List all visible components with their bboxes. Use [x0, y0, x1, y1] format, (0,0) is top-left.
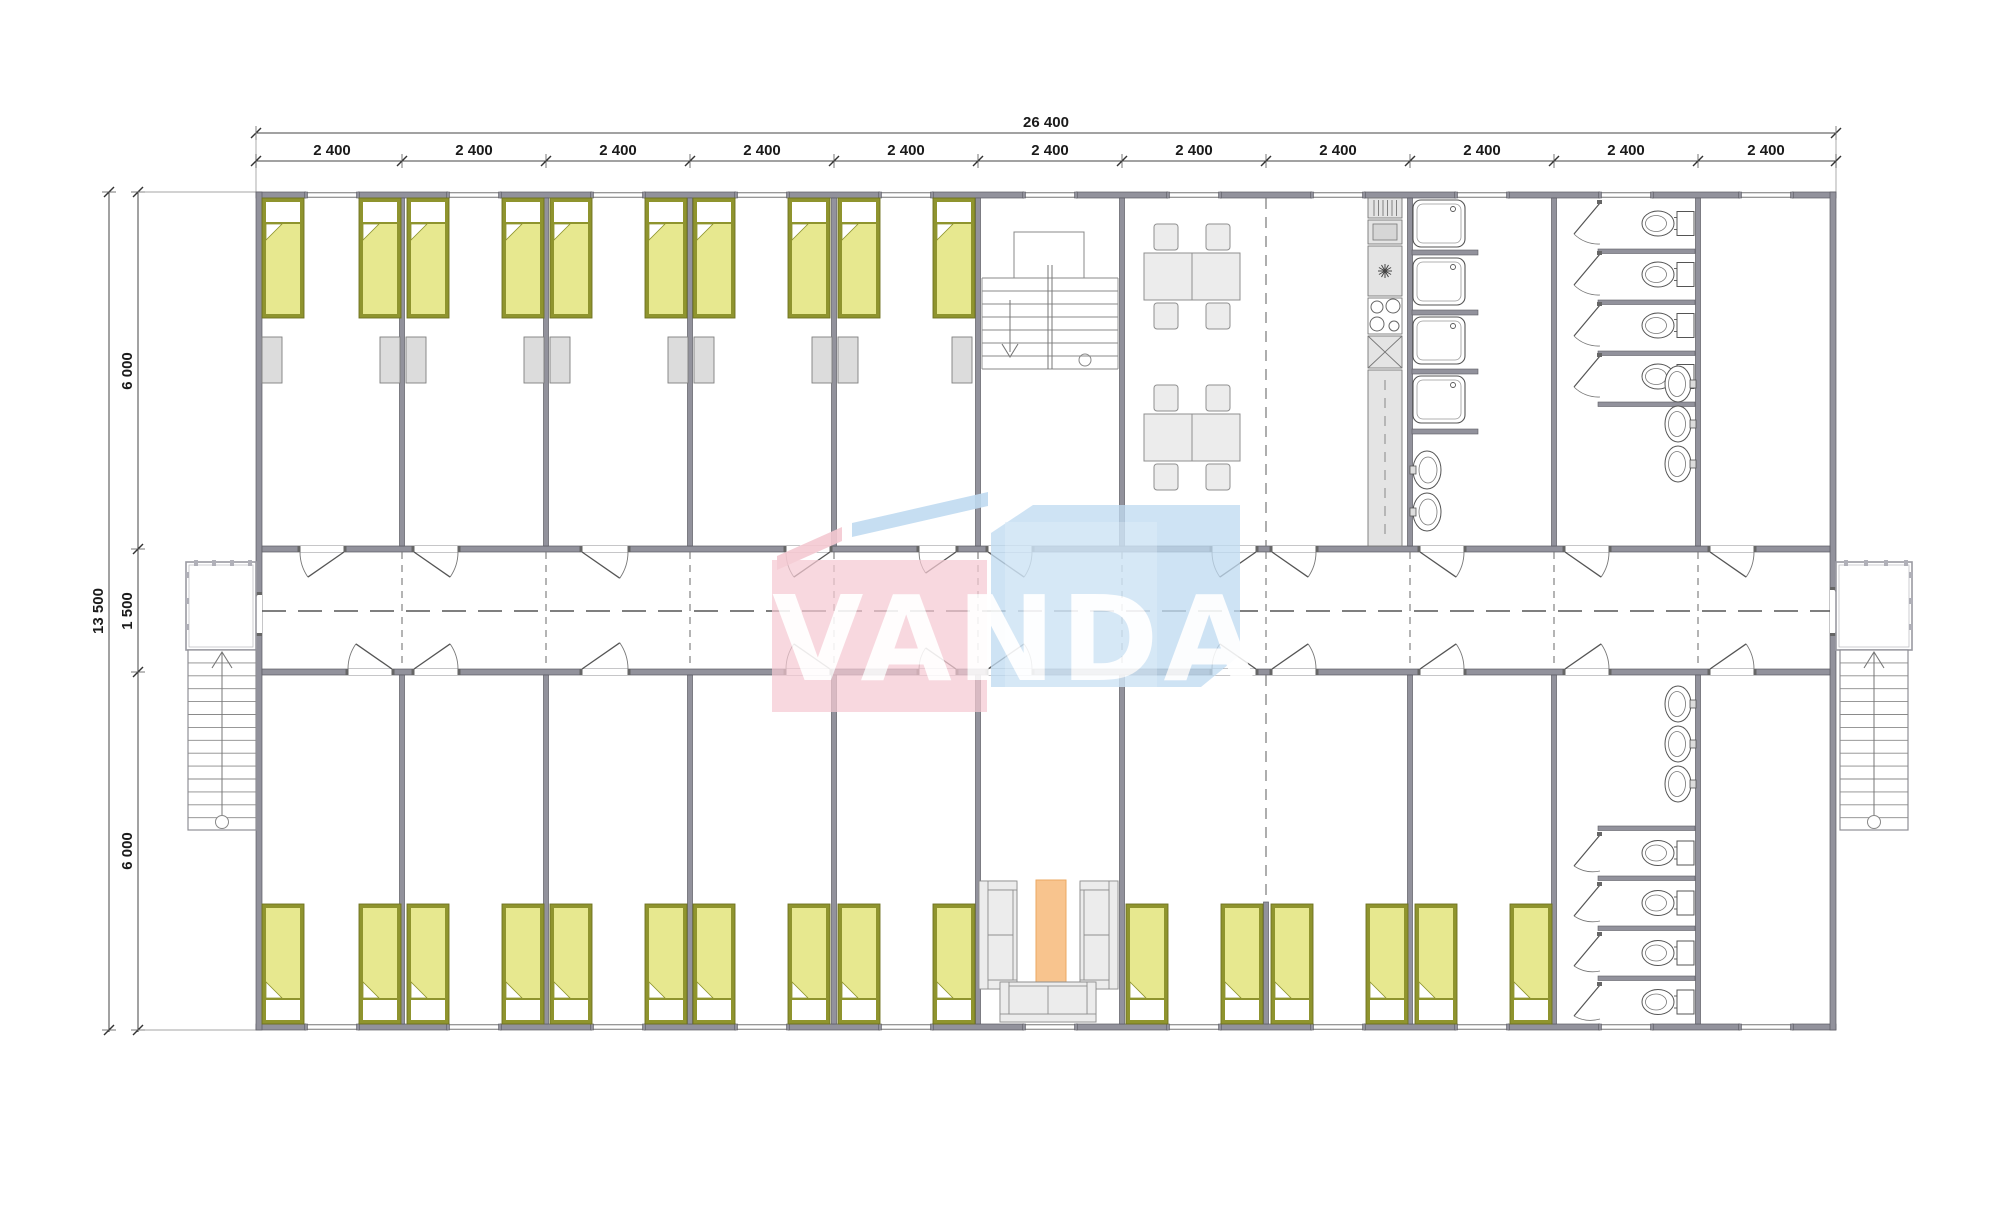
bed-blanket	[649, 224, 683, 314]
bed-blanket	[1225, 908, 1259, 998]
toilet	[1642, 313, 1694, 338]
toilet-bowl	[1642, 211, 1674, 236]
door-opening	[582, 669, 628, 675]
glazing-tick	[1909, 624, 1913, 630]
shower-divider	[1412, 250, 1478, 255]
bed-pillow	[554, 202, 588, 222]
stall-door-leaf	[1574, 203, 1600, 234]
toilet	[1642, 262, 1694, 287]
window-jamb	[1311, 1024, 1314, 1030]
toilet	[1642, 211, 1694, 236]
vanda-watermark: VANDA	[772, 492, 1260, 712]
door-leaf	[1565, 552, 1601, 577]
window	[736, 191, 788, 199]
stall-door-jamb	[1597, 932, 1602, 936]
bed-pillow	[1130, 1000, 1164, 1020]
bed	[502, 198, 544, 318]
door-jamb	[1609, 546, 1612, 552]
window-jamb	[1791, 192, 1794, 198]
bed-pillow	[1370, 1000, 1404, 1020]
window-jamb	[1023, 1024, 1026, 1030]
door-jamb	[917, 546, 920, 552]
glazing-tick	[185, 572, 189, 578]
vestibule	[186, 562, 256, 650]
door-opening	[919, 546, 956, 552]
window	[880, 1023, 932, 1031]
window-jamb	[1167, 1024, 1170, 1030]
bed-pillow	[1514, 1000, 1548, 1020]
stall-door-jamb	[1597, 200, 1602, 204]
door-leaf	[414, 552, 450, 577]
bed-blanket	[411, 908, 445, 998]
door-opening	[1272, 546, 1316, 552]
bed-pillow	[649, 202, 683, 222]
dim-label-top-segment: 2 400	[1175, 142, 1213, 159]
wardrobe	[524, 337, 544, 383]
window-jamb	[499, 1024, 502, 1030]
dim-label-left-segment: 6 000	[119, 832, 136, 870]
wardrobe	[406, 337, 426, 383]
toilet-bowl	[1642, 891, 1674, 916]
stall-door-swing	[1574, 866, 1600, 872]
door-swing-arc	[348, 644, 356, 669]
bed-blanket	[1130, 908, 1164, 998]
stall-door-jamb	[1597, 982, 1602, 986]
bed-pillow	[1225, 1000, 1259, 1020]
door-swing-arc	[1456, 552, 1464, 577]
door-jamb	[1270, 669, 1273, 675]
window	[1740, 191, 1792, 199]
bed-pillow	[792, 202, 826, 222]
window-jamb	[1599, 192, 1602, 198]
toilet-bowl	[1642, 313, 1674, 338]
bed-pillow	[506, 1000, 540, 1020]
bed	[838, 198, 880, 318]
window-jamb	[1023, 192, 1026, 198]
dim-label-top-segment: 2 400	[887, 142, 925, 159]
dim-label-top-segment: 2 400	[599, 142, 637, 159]
stair-landing	[1014, 232, 1084, 278]
door-jamb	[458, 546, 461, 552]
glazing-tick	[185, 598, 189, 604]
toilet	[1642, 841, 1694, 866]
bed-blanket	[266, 224, 300, 314]
dim-label-left-segment: 6 000	[119, 352, 136, 390]
vestibule	[1836, 562, 1912, 650]
door-leaf	[1565, 644, 1601, 669]
window-jamb	[1075, 192, 1078, 198]
wardrobe	[550, 337, 570, 383]
stall-divider	[1598, 249, 1695, 254]
door-swing-arc	[1601, 644, 1609, 669]
stall-divider	[1598, 876, 1695, 881]
door-jamb	[298, 546, 301, 552]
glazing-tick	[1909, 598, 1913, 604]
shower	[1413, 317, 1465, 364]
hob-unit	[1368, 298, 1402, 334]
rug	[1036, 880, 1066, 992]
wash-basin	[1665, 686, 1696, 722]
bed-pillow	[842, 202, 876, 222]
door-swing-arc	[300, 552, 308, 577]
dim-label-top-segment: 2 400	[1607, 142, 1645, 159]
stall-door-swing	[1574, 336, 1600, 346]
stall-door-jamb	[1597, 882, 1602, 886]
toilet-tank	[1677, 212, 1694, 236]
stall-door-swing	[1574, 1016, 1600, 1020]
sofa	[1000, 982, 1096, 1022]
door-swing-arc	[1601, 552, 1609, 577]
bed-blanket	[266, 908, 300, 998]
window	[880, 191, 932, 199]
toilet-tank	[1677, 841, 1694, 865]
basin-tap	[1690, 700, 1696, 708]
bed-pillow	[266, 1000, 300, 1020]
partition-wall-lower	[1696, 675, 1701, 1024]
door-leaf	[414, 644, 450, 669]
bed	[693, 904, 735, 1024]
window-jamb	[1739, 1024, 1742, 1030]
window-jamb	[735, 192, 738, 198]
toilet-tank	[1677, 263, 1694, 287]
door-leaf	[356, 644, 392, 669]
window-jamb	[499, 192, 502, 198]
bed-pillow	[1419, 1000, 1453, 1020]
dim-label-top-segment: 2 400	[743, 142, 781, 159]
window-jamb	[357, 192, 360, 198]
window	[592, 191, 644, 199]
wash-basin	[1665, 726, 1696, 762]
door-jamb	[628, 669, 631, 675]
partition-wall-lower	[832, 675, 837, 1024]
glazing-tick	[194, 560, 198, 566]
shower-tray	[1413, 258, 1465, 305]
door-jamb	[1830, 587, 1836, 590]
dim-label-top-segment: 2 400	[1031, 142, 1069, 159]
bed	[838, 904, 880, 1024]
dim-label-top-segment: 2 400	[1463, 142, 1501, 159]
partition-wall-upper	[976, 198, 981, 546]
window-jamb	[447, 192, 450, 198]
glazing-tick	[1884, 560, 1888, 566]
dining-chair	[1206, 224, 1230, 250]
wash-basin	[1410, 493, 1441, 531]
stall-door-leaf	[1574, 356, 1600, 387]
door-swing-arc	[1746, 552, 1754, 577]
floor-plan-page: 26 4002 4002 4002 4002 4002 4002 4002 40…	[0, 0, 2000, 1215]
door-opening	[1830, 590, 1836, 633]
bed-blanket	[792, 908, 826, 998]
bed-pillow	[411, 1000, 445, 1020]
window-jamb	[1363, 192, 1366, 198]
window-jamb	[1651, 192, 1654, 198]
sofa	[1080, 881, 1118, 989]
window-jamb	[879, 1024, 882, 1030]
door-jamb	[392, 669, 395, 675]
bed-pillow	[411, 202, 445, 222]
door-swing-arc	[1746, 644, 1754, 669]
basin-tap	[1690, 780, 1696, 788]
toilet	[1642, 990, 1694, 1015]
door-swing-arc	[450, 552, 458, 577]
basin-tap	[1690, 460, 1696, 468]
dim-label-top-segment: 2 400	[313, 142, 351, 159]
stall-divider	[1598, 300, 1695, 305]
door-swing-arc	[1456, 644, 1464, 669]
dim-label-left-total: 13 500	[90, 588, 107, 634]
bed-blanket	[506, 224, 540, 314]
door-jamb	[1464, 669, 1467, 675]
shower-divider	[1412, 310, 1478, 315]
window-jamb	[735, 1024, 738, 1030]
bed-blanket	[411, 224, 445, 314]
stall-door-leaf	[1574, 985, 1600, 1016]
bed-blanket	[937, 908, 971, 998]
window-jamb	[357, 1024, 360, 1030]
bed	[262, 904, 304, 1024]
door-jamb	[1754, 546, 1757, 552]
stall-door-swing	[1574, 285, 1600, 295]
door-leaf	[1272, 644, 1308, 669]
toilet-bowl	[1642, 990, 1674, 1015]
dim-label-top-total: 26 400	[1023, 114, 1069, 131]
wardrobe	[694, 337, 714, 383]
window	[592, 1023, 644, 1031]
dining-chair	[1154, 224, 1178, 250]
wardrobe	[812, 337, 832, 383]
bed-pillow	[937, 1000, 971, 1020]
wardrobe	[380, 337, 400, 383]
basin-tap	[1690, 420, 1696, 428]
toilet-tank	[1677, 314, 1694, 338]
bed	[1271, 904, 1313, 1024]
dim-label-top-segment: 2 400	[1319, 142, 1357, 159]
bed	[550, 198, 592, 318]
basin-tap	[1410, 466, 1416, 474]
door-jamb	[830, 546, 833, 552]
door-leaf	[308, 552, 344, 577]
window-jamb	[1167, 192, 1170, 198]
stall-divider	[1598, 826, 1695, 831]
door-leaf	[1710, 552, 1746, 577]
window-jamb	[1791, 1024, 1794, 1030]
window	[448, 191, 500, 199]
toilet	[1642, 941, 1694, 966]
door-jamb	[1316, 546, 1319, 552]
bed-blanket	[1275, 908, 1309, 998]
washroom	[1410, 200, 1478, 531]
wardrobe	[838, 337, 858, 383]
bed	[933, 904, 975, 1024]
shower-tray	[1413, 376, 1465, 423]
bed	[693, 198, 735, 318]
door-jamb	[956, 546, 959, 552]
stall-door-swing	[1574, 234, 1600, 244]
door-jamb	[1256, 546, 1259, 552]
window-jamb	[305, 1024, 308, 1030]
door-opening	[1420, 669, 1464, 675]
door-opening	[256, 595, 262, 633]
door-opening	[1272, 669, 1316, 675]
door-jamb	[628, 546, 631, 552]
stall-door-swing	[1574, 916, 1600, 922]
bed-pillow	[649, 1000, 683, 1020]
stall-door-leaf	[1574, 935, 1600, 966]
dining-room	[1144, 224, 1240, 490]
dining-chair	[1154, 385, 1178, 411]
glazing-tick	[1909, 572, 1913, 578]
stall-door-leaf	[1574, 254, 1600, 285]
glazing-tick	[212, 560, 216, 566]
floor-plan: 26 4002 4002 4002 4002 4002 4002 4002 40…	[0, 0, 2000, 1215]
window	[1312, 1023, 1364, 1031]
shower-tray	[1413, 317, 1465, 364]
window-jamb	[643, 1024, 646, 1030]
wardrobes	[262, 337, 972, 383]
external-staircase-left	[185, 560, 256, 830]
window	[1168, 1023, 1220, 1031]
bed-blanket	[1419, 908, 1453, 998]
toilet-tank	[1677, 941, 1694, 965]
bed	[788, 904, 830, 1024]
bed	[1221, 904, 1263, 1024]
shower	[1413, 200, 1465, 247]
door-opening	[1710, 546, 1754, 552]
glazing-tick	[230, 560, 234, 566]
basin-tap	[1690, 380, 1696, 388]
door-jamb	[1464, 546, 1467, 552]
dim-label-left-segment: 1 500	[119, 592, 136, 630]
dining-chair	[1206, 303, 1230, 329]
door-jamb	[1708, 669, 1711, 675]
partition-wall-lower	[1264, 902, 1269, 1024]
dining-table-group	[1144, 224, 1240, 329]
partition-wall-lower	[1120, 675, 1125, 1024]
window-jamb	[1599, 1024, 1602, 1030]
bed-blanket	[937, 224, 971, 314]
partition-wall-upper	[1696, 198, 1701, 546]
shower	[1413, 258, 1465, 305]
door-opening	[414, 669, 458, 675]
bed-pillow	[697, 202, 731, 222]
stall-door-swing	[1574, 387, 1600, 397]
stair-pole	[216, 816, 229, 829]
glazing-tick	[1904, 560, 1908, 566]
door-jamb	[256, 592, 262, 595]
bed-pillow	[792, 1000, 826, 1020]
wash-basin	[1665, 766, 1696, 802]
bed	[1366, 904, 1408, 1024]
bed	[1126, 904, 1168, 1024]
window-jamb	[1739, 192, 1742, 198]
bed-blanket	[697, 224, 731, 314]
door-leaf	[582, 552, 620, 578]
lounge	[979, 880, 1118, 1022]
kitchen-counter	[1368, 198, 1402, 546]
door-swing-arc	[1308, 552, 1316, 577]
door-opening	[1565, 546, 1609, 552]
window	[1600, 191, 1652, 199]
partition-wall-lower	[688, 675, 693, 1024]
bed	[407, 904, 449, 1024]
bed-blanket	[1370, 908, 1404, 998]
door-jamb	[1270, 546, 1273, 552]
door-jamb	[1754, 669, 1757, 675]
toilet	[1642, 891, 1694, 916]
wardrobe	[668, 337, 688, 383]
sofa	[979, 881, 1017, 989]
door-jamb	[1609, 669, 1612, 675]
door-leaf	[1420, 644, 1456, 669]
door-jamb	[458, 669, 461, 675]
stall-door-leaf	[1574, 835, 1600, 866]
window-jamb	[643, 192, 646, 198]
stall-door-leaf	[1574, 885, 1600, 916]
bed	[645, 904, 687, 1024]
bed-blanket	[363, 908, 397, 998]
door-leaf	[582, 643, 620, 669]
window-jamb	[591, 192, 594, 198]
window-jamb	[1507, 1024, 1510, 1030]
bed	[407, 198, 449, 318]
dining-chair	[1154, 303, 1178, 329]
door-jamb	[1418, 546, 1421, 552]
bed-pillow	[554, 1000, 588, 1020]
wash-basin	[1410, 451, 1441, 489]
dining-chair	[1206, 464, 1230, 490]
door-opening	[1420, 546, 1464, 552]
sofa-back	[979, 881, 988, 989]
door-jamb	[344, 546, 347, 552]
window-jamb	[787, 192, 790, 198]
bed	[645, 198, 687, 318]
door-swing-arc	[1308, 644, 1316, 669]
glazing-tick	[1844, 560, 1848, 566]
toilet-tank	[1677, 990, 1694, 1014]
window-jamb	[591, 1024, 594, 1030]
window	[1740, 1023, 1792, 1031]
door-jamb	[1316, 669, 1319, 675]
bed-pillow	[363, 202, 397, 222]
dining-table-group	[1144, 385, 1240, 490]
shower	[1413, 376, 1465, 423]
shower-tray	[1413, 200, 1465, 247]
basin-tap	[1690, 740, 1696, 748]
bed-blanket	[842, 908, 876, 998]
window-jamb	[1363, 1024, 1366, 1030]
stall-door-jamb	[1597, 302, 1602, 306]
door-jamb	[986, 546, 989, 552]
door-swing-arc	[620, 643, 628, 669]
bed-pillow	[363, 1000, 397, 1020]
bed	[359, 904, 401, 1024]
bed-pillow	[506, 202, 540, 222]
door-opening	[414, 546, 458, 552]
window-jamb	[931, 1024, 934, 1030]
dining-chair	[1206, 385, 1230, 411]
external-staircase-right	[1836, 560, 1913, 830]
window-jamb	[879, 192, 882, 198]
window	[306, 191, 358, 199]
dining-chair	[1154, 464, 1178, 490]
wash-basin	[1665, 406, 1696, 442]
appliance-inner	[1373, 224, 1397, 240]
window	[448, 1023, 500, 1031]
bed-blanket	[554, 224, 588, 314]
door-opening	[1565, 669, 1609, 675]
shower-divider	[1412, 369, 1478, 374]
door-jamb	[1563, 546, 1566, 552]
